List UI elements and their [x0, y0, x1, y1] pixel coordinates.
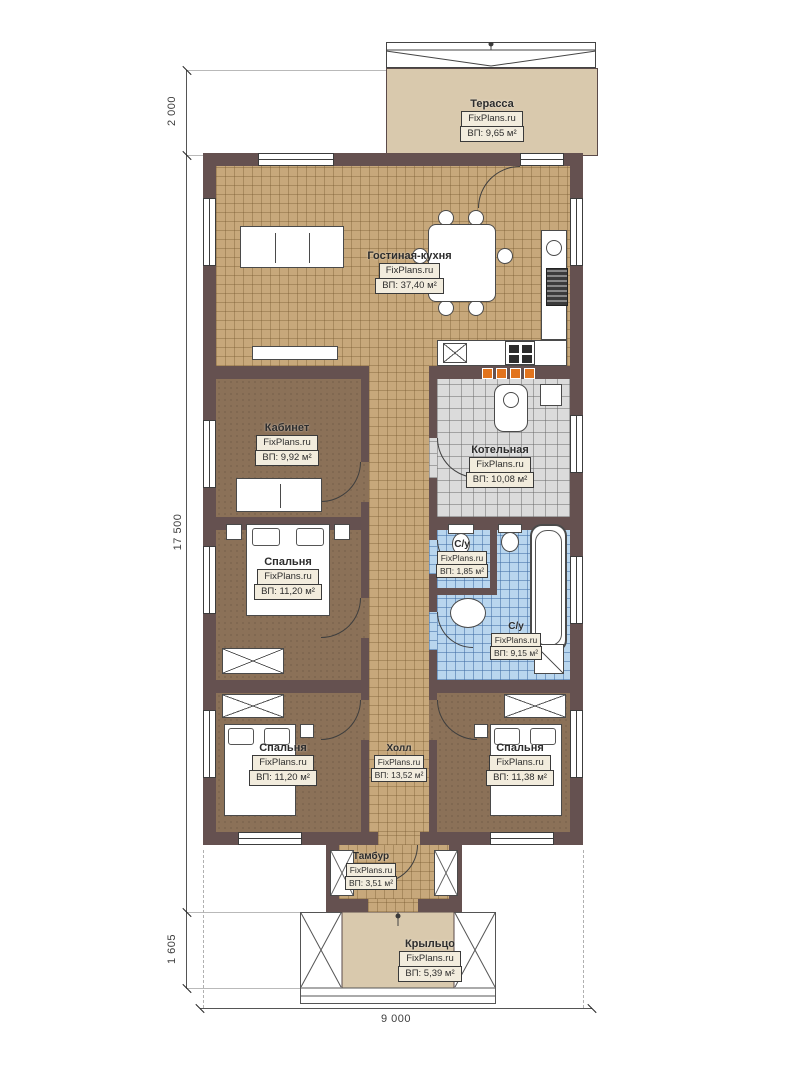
stove: [505, 341, 535, 365]
window: [570, 415, 583, 473]
brand-watermark: FixPlans.ru: [374, 755, 425, 769]
room-name: С/у: [454, 538, 470, 551]
floor-plan: 2 000 17 500 1 605 9 000: [0, 0, 792, 1080]
brand-watermark: FixPlans.ru: [257, 569, 319, 585]
kitchen-sink: [546, 240, 562, 256]
heating-indicator: [496, 368, 507, 379]
room-area: ВП: 3,51 м²: [345, 876, 397, 890]
brand-watermark: FixPlans.ru: [399, 951, 461, 967]
room-name: Кабинет: [265, 422, 310, 435]
door-opening: [378, 832, 420, 845]
room-area: ВП: 9,65 м²: [460, 126, 523, 142]
door-opening: [361, 462, 369, 502]
door-opening: [429, 612, 437, 650]
brand-watermark: FixPlans.ru: [256, 435, 318, 451]
room-label-hall: Холл FixPlans.ru ВП: 13,52 м²: [349, 742, 449, 782]
window: [203, 420, 216, 488]
brand-watermark: FixPlans.ru: [252, 755, 314, 771]
room-label-tambur: Тамбур FixPlans.ru ВП: 3,51 м²: [328, 850, 414, 890]
room-label-bedroom1: Спальня FixPlans.ru ВП: 11,20 м²: [233, 556, 343, 600]
room-label-bedroom2: Спальня FixPlans.ru ВП: 11,20 м²: [228, 742, 338, 786]
room-area: ВП: 13,52 м²: [371, 768, 428, 782]
tambur-side-window: [434, 850, 458, 896]
room-label-wc2: С/у FixPlans.ru ВП: 9,15 м²: [478, 620, 554, 660]
chair: [468, 300, 484, 316]
heating-indicator: [524, 368, 535, 379]
window: [570, 556, 583, 624]
nightstand: [474, 724, 488, 738]
room-area: ВП: 9,15 м²: [490, 646, 542, 660]
room-name: Котельная: [471, 444, 529, 457]
room-label-boiler: Котельная FixPlans.ru ВП: 10,08 м²: [445, 444, 555, 488]
dimension-label-house-length: 17 500: [172, 502, 184, 562]
wall-partition: [437, 588, 497, 595]
dimension-line-house: [186, 155, 187, 912]
office-sofa: [236, 478, 322, 512]
window: [203, 546, 216, 614]
wardrobe: [504, 694, 566, 718]
toilet: [501, 532, 519, 552]
room-area: ВП: 1,85 м²: [436, 564, 488, 578]
room-area: ВП: 37,40 м²: [375, 278, 444, 294]
coffee-table: [252, 346, 338, 360]
chair: [497, 248, 513, 264]
wardrobe: [222, 694, 284, 718]
room-name: Спальня: [264, 556, 312, 569]
nightstand: [334, 524, 350, 540]
pillow: [296, 528, 324, 546]
room-name: Холл: [386, 742, 411, 755]
extension-line: [186, 70, 386, 71]
room-name: Спальня: [496, 742, 544, 755]
room-label-living: Гостиная-кухня FixPlans.ru ВП: 37,40 м²: [352, 250, 467, 294]
room-name: С/у: [508, 620, 524, 633]
room-area: ВП: 11,20 м²: [254, 584, 322, 600]
window: [203, 198, 216, 266]
window: [258, 153, 334, 166]
heating-indicator: [510, 368, 521, 379]
brand-watermark: FixPlans.ru: [379, 263, 441, 279]
room-area: ВП: 11,38 м²: [486, 770, 554, 786]
terrace-steps: [386, 42, 596, 68]
door-opening: [368, 899, 418, 912]
brand-watermark: FixPlans.ru: [461, 111, 523, 127]
room-area: ВП: 10,08 м²: [466, 472, 535, 488]
wall-partition: [216, 680, 369, 693]
room-area: ВП: 11,20 м²: [249, 770, 317, 786]
dimension-line-terrace: [186, 70, 187, 155]
room-area: ВП: 9,92 м²: [255, 450, 318, 466]
door-opening: [429, 700, 437, 740]
pillow: [252, 528, 280, 546]
sofa: [240, 226, 344, 268]
window: [203, 710, 216, 778]
room-name: Спальня: [259, 742, 307, 755]
door-opening: [361, 700, 369, 740]
heating-indicator: [482, 368, 493, 379]
brand-watermark: FixPlans.ru: [346, 863, 397, 877]
room-label-bedroom3: Спальня FixPlans.ru ВП: 11,38 м²: [465, 742, 575, 786]
wall-partition: [429, 680, 567, 693]
nightstand: [226, 524, 242, 540]
terrace-door: [520, 153, 564, 166]
room-label-terrace: Терасса FixPlans.ru ВП: 9,65 м²: [437, 98, 547, 142]
dimension-label-terrace: 2 000: [166, 81, 178, 141]
room-label-wc1: С/у FixPlans.ru ВП: 1,85 м²: [432, 538, 492, 578]
sink-unit: [443, 343, 467, 363]
fridge: [546, 268, 568, 306]
wardrobe: [222, 648, 284, 674]
dimension-label-width: 9 000: [346, 1013, 446, 1025]
dimension-label-porch: 1 605: [166, 919, 178, 979]
window: [490, 832, 554, 845]
room-name: Тамбур: [353, 850, 389, 863]
brand-watermark: FixPlans.ru: [437, 551, 488, 565]
room-label-porch: Крыльцо FixPlans.ru ВП: 5,39 м²: [375, 938, 485, 982]
room-name: Терасса: [470, 98, 514, 111]
door-opening: [361, 598, 369, 638]
extension-line: [583, 850, 584, 1008]
wall-partition: [216, 366, 369, 379]
extension-line: [203, 850, 204, 1008]
room-area: ВП: 5,39 м²: [398, 966, 461, 982]
brand-watermark: FixPlans.ru: [469, 457, 531, 473]
door-opening: [429, 438, 437, 478]
terrace-steps-drawing: [386, 42, 596, 68]
dimension-line-porch: [186, 912, 187, 988]
room-label-office: Кабинет FixPlans.ru ВП: 9,92 м²: [232, 422, 342, 466]
window: [238, 832, 302, 845]
brand-watermark: FixPlans.ru: [489, 755, 551, 771]
window: [570, 198, 583, 266]
brand-watermark: FixPlans.ru: [491, 633, 542, 647]
dimension-line-width: [200, 1008, 592, 1009]
room-name: Крыльцо: [405, 938, 455, 951]
boiler-dial: [503, 392, 519, 408]
chair: [438, 300, 454, 316]
nightstand: [300, 724, 314, 738]
boiler-equipment: [540, 384, 562, 406]
room-name: Гостиная-кухня: [367, 250, 451, 263]
